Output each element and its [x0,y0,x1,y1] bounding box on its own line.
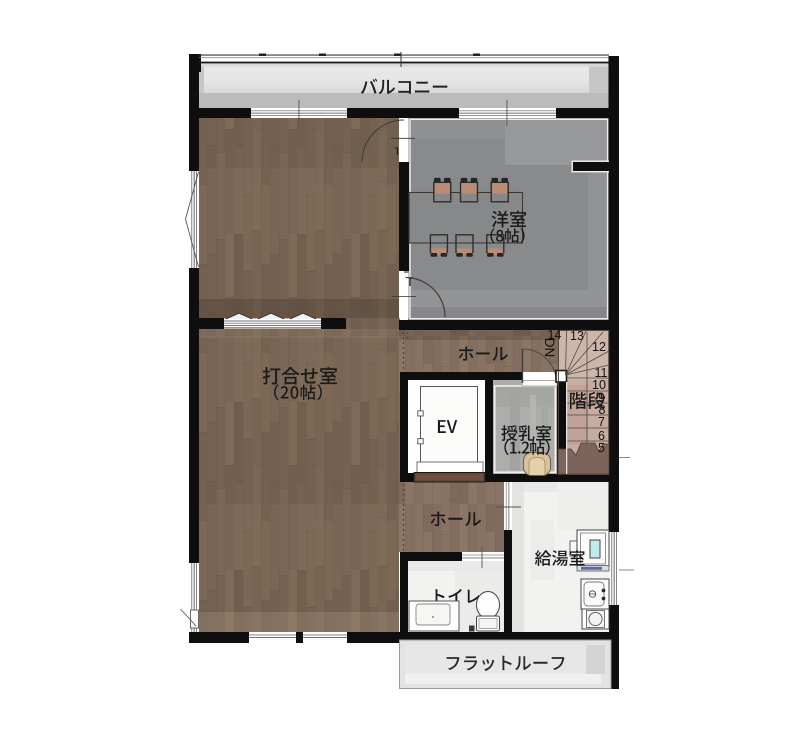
svg-text:5: 5 [598,441,605,455]
svg-text:DN: DN [542,338,557,358]
svg-text:10: 10 [592,378,606,392]
svg-text:12: 12 [592,340,606,354]
svg-text:7: 7 [598,415,605,429]
svg-text:13: 13 [570,329,584,343]
